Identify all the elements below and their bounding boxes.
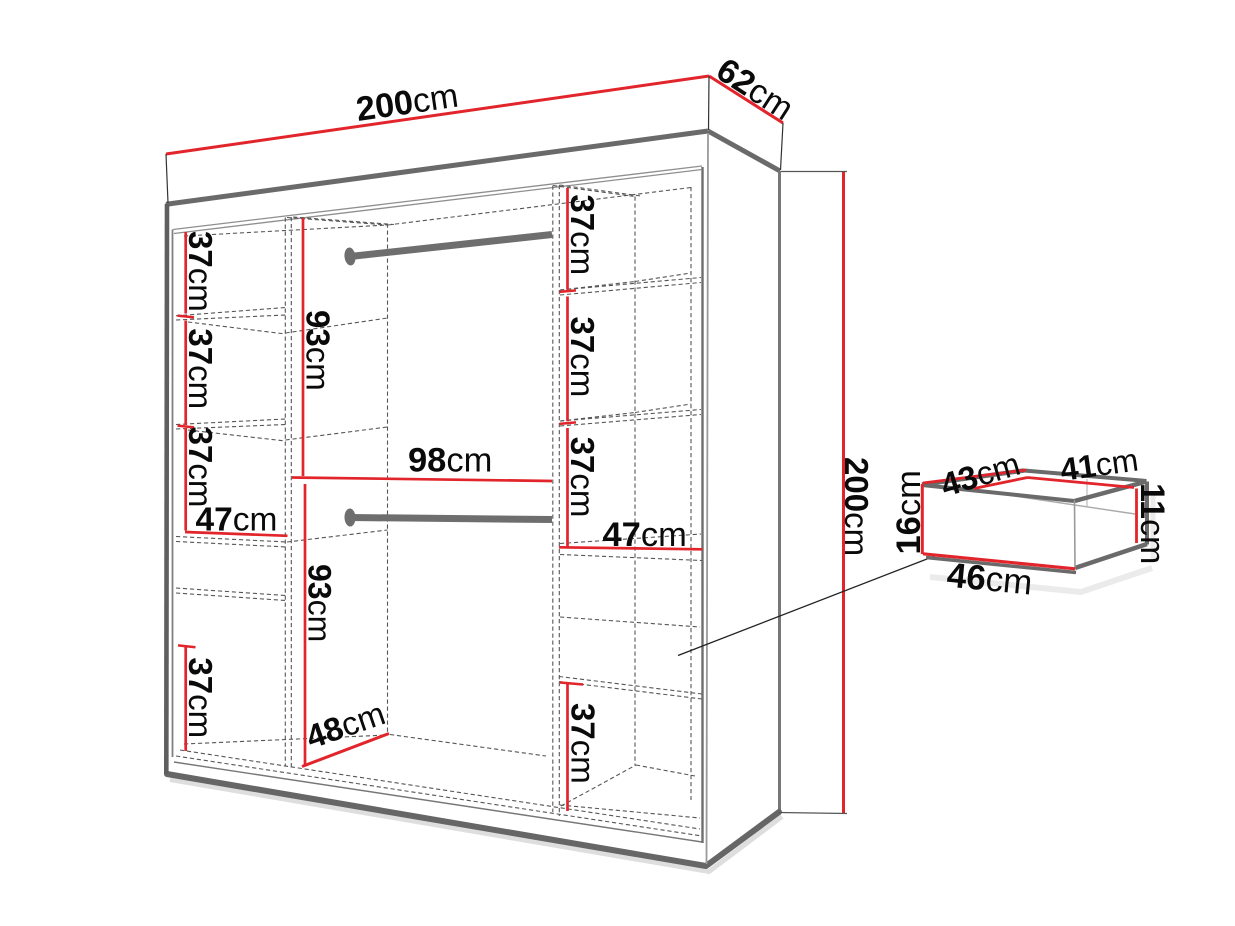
svg-text:37cm: 37cm	[182, 231, 219, 312]
svg-text:93cm: 93cm	[300, 310, 337, 391]
svg-text:98cm: 98cm	[408, 442, 492, 480]
svg-text:46cm: 46cm	[945, 556, 1034, 603]
svg-text:37cm: 37cm	[564, 194, 601, 275]
svg-text:37cm: 37cm	[564, 437, 601, 518]
svg-text:47cm: 47cm	[196, 502, 278, 539]
svg-text:200cm: 200cm	[354, 77, 461, 129]
svg-text:37cm: 37cm	[182, 328, 219, 409]
svg-text:93cm: 93cm	[302, 564, 338, 642]
svg-text:200cm: 200cm	[838, 457, 875, 556]
svg-text:37cm: 37cm	[565, 703, 602, 784]
svg-text:37cm: 37cm	[182, 657, 219, 738]
svg-text:62cm: 62cm	[710, 51, 800, 128]
svg-text:11cm: 11cm	[1133, 483, 1171, 564]
svg-text:37cm: 37cm	[564, 317, 601, 398]
svg-text:47cm: 47cm	[603, 516, 687, 554]
svg-text:16cm: 16cm	[890, 470, 928, 554]
svg-text:48cm: 48cm	[301, 694, 389, 755]
svg-text:37cm: 37cm	[182, 427, 219, 508]
